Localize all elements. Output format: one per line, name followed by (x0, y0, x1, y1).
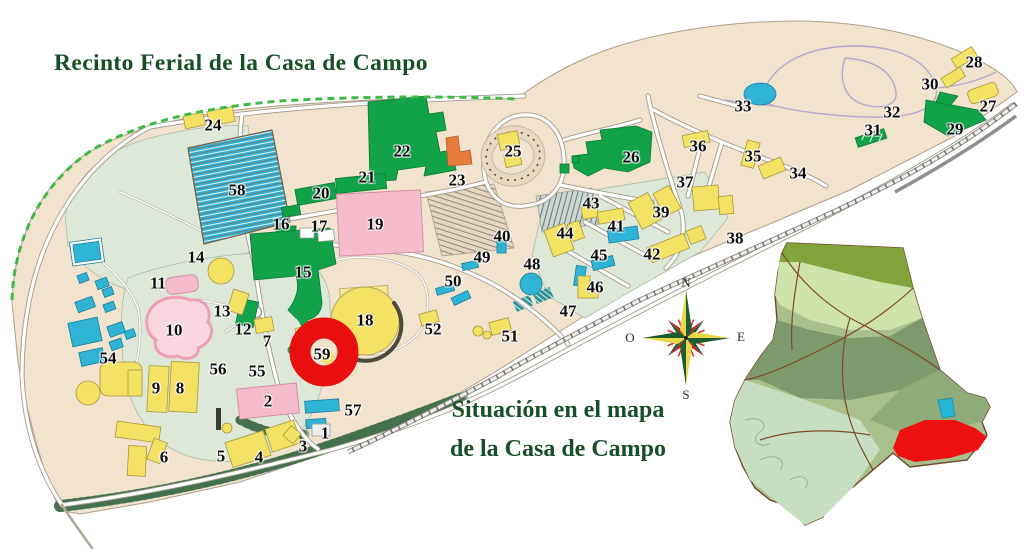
map-number-20: 20 (313, 185, 330, 202)
map-number-48: 48 (524, 256, 541, 273)
map-number-49: 49 (474, 249, 491, 266)
map-stage: Recinto Ferial de la Casa de Campo Situa… (0, 0, 1024, 556)
map-number-54: 54 (100, 350, 117, 367)
inset-caption: Situación en el mapa de la Casa de Campo (408, 391, 708, 469)
map-number-17: 17 (311, 218, 328, 235)
map-number-50: 50 (445, 273, 462, 290)
map-number-51: 51 (502, 328, 519, 345)
map-number-56: 56 (210, 361, 227, 378)
map-title: Recinto Ferial de la Casa de Campo (54, 50, 428, 77)
map-number-2: 2 (264, 393, 273, 410)
inset-caption-line1: Situación en el mapa (408, 391, 708, 430)
map-number-1: 1 (321, 425, 330, 442)
map-number-22: 22 (394, 143, 411, 160)
map-number-38: 38 (727, 230, 744, 247)
map-number-28: 28 (966, 54, 983, 71)
map-number-9: 9 (152, 380, 161, 397)
map-number-36: 36 (690, 138, 707, 155)
map-number-16: 16 (273, 216, 290, 233)
map-number-30: 30 (922, 76, 939, 93)
map-number-33: 33 (735, 98, 752, 115)
map-number-24: 24 (205, 117, 222, 134)
inset-casa-de-campo-map (730, 243, 990, 525)
map-number-15: 15 (295, 264, 312, 281)
map-number-14: 14 (188, 249, 205, 266)
map-number-25: 25 (505, 143, 522, 160)
map-number-44: 44 (557, 225, 574, 242)
inset-caption-line2: de la Casa de Campo (408, 430, 708, 469)
map-number-23: 23 (449, 172, 466, 189)
compass-label-north: N (681, 275, 690, 291)
map-number-45: 45 (591, 247, 608, 264)
compass-label-east: E (737, 329, 745, 345)
map-number-58: 58 (229, 182, 246, 199)
map-number-8: 8 (176, 380, 185, 397)
map-number-41: 41 (608, 218, 625, 235)
map-number-11: 11 (150, 275, 166, 292)
map-number-46: 46 (587, 279, 604, 296)
map-number-6: 6 (160, 449, 169, 466)
map-number-32: 32 (884, 104, 901, 121)
map-number-3: 3 (299, 438, 308, 455)
map-number-47: 47 (560, 303, 577, 320)
map-number-42: 42 (644, 246, 661, 263)
map-number-39: 39 (653, 204, 670, 221)
map-number-12: 12 (235, 321, 252, 338)
map-number-29: 29 (947, 121, 964, 138)
map-number-43: 43 (583, 195, 600, 212)
map-number-37: 37 (677, 174, 694, 191)
map-number-13: 13 (214, 303, 231, 320)
map-number-59: 59 (314, 346, 331, 363)
map-number-35: 35 (745, 148, 762, 165)
map-number-57: 57 (345, 402, 362, 419)
map-number-5: 5 (217, 448, 226, 465)
map-number-10: 10 (166, 322, 183, 339)
map-number-21: 21 (359, 169, 376, 186)
compass-label-south: S (682, 387, 689, 403)
map-number-27: 27 (980, 98, 997, 115)
map-number-26: 26 (623, 149, 640, 166)
map-number-18: 18 (357, 312, 374, 329)
map-number-34: 34 (790, 165, 807, 182)
map-number-4: 4 (255, 449, 264, 466)
map-number-52: 52 (425, 321, 442, 338)
map-number-19: 19 (367, 216, 384, 233)
map-number-55: 55 (249, 363, 266, 380)
map-number-7: 7 (263, 333, 272, 350)
compass-label-west: O (625, 330, 634, 346)
map-number-40: 40 (494, 228, 511, 245)
map-number-31: 31 (865, 122, 882, 139)
